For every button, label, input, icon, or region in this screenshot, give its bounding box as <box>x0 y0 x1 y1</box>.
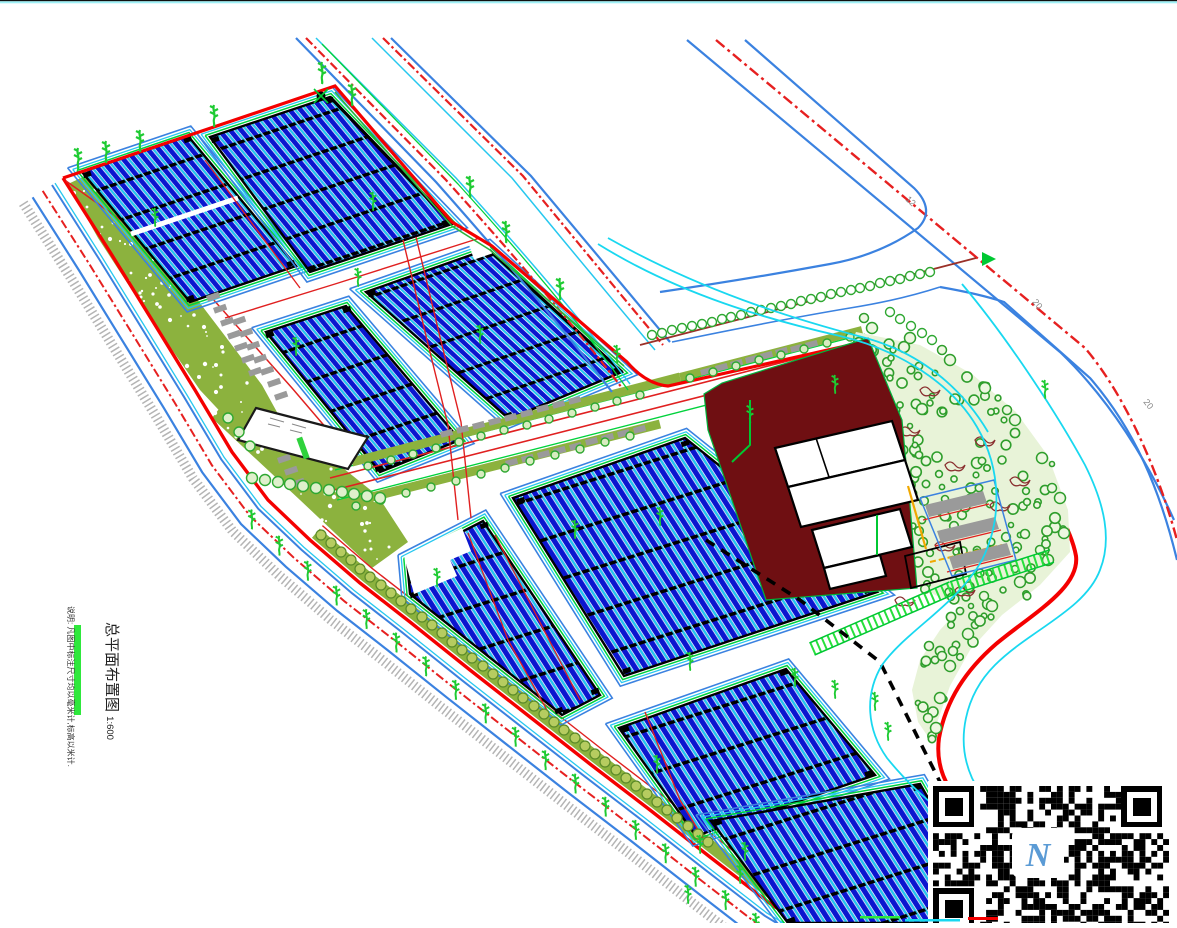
svg-text:N: N <box>1025 837 1052 874</box>
svg-text:说明: 凡图中标注尺寸均以毫米计,标高以米计.: 说明: 凡图中标注尺寸均以毫米计,标高以米计. <box>66 606 76 767</box>
